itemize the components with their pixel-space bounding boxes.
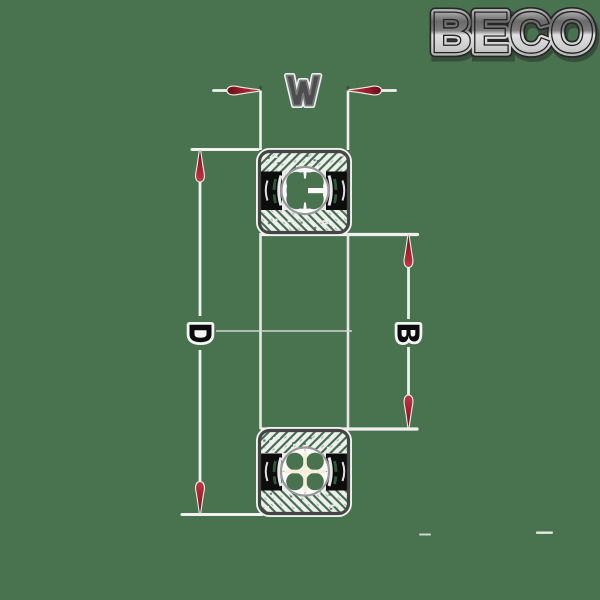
svg-text:BECO: BECO <box>431 1 594 65</box>
